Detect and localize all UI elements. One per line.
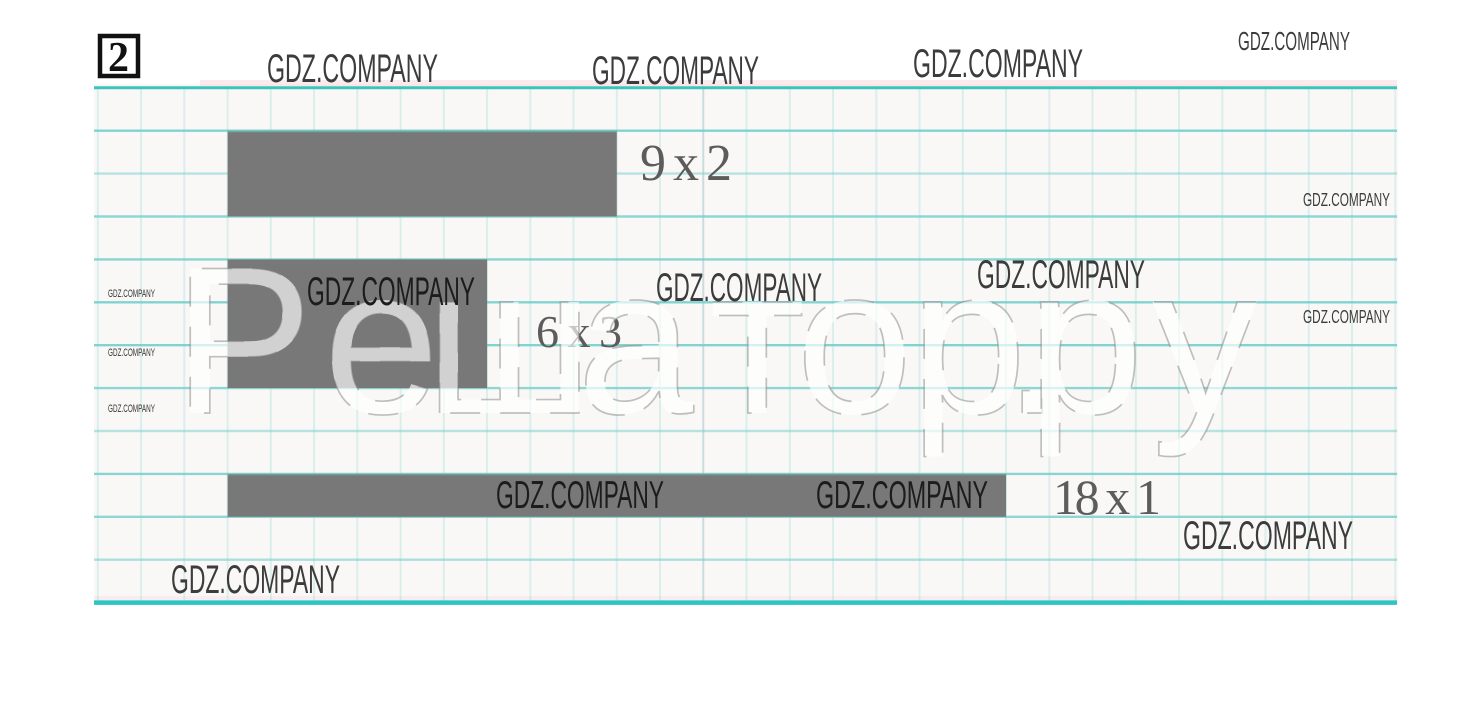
svg-text:GDZ.COMPANY: GDZ.COMPANY [108, 288, 155, 300]
svg-text:GDZ.COMPANY: GDZ.COMPANY [267, 47, 438, 91]
svg-text:GDZ.COMPANY: GDZ.COMPANY [108, 403, 155, 415]
svg-text:GDZ.COMPANY: GDZ.COMPANY [1303, 190, 1390, 210]
svg-text:GDZ.COMPANY: GDZ.COMPANY [1238, 26, 1350, 56]
svg-text:GDZ.COMPANY: GDZ.COMPANY [913, 42, 1083, 86]
svg-text:GDZ.COMPANY: GDZ.COMPANY [1183, 514, 1353, 558]
svg-text:GDZ.COMPANY: GDZ.COMPANY [816, 474, 988, 517]
svg-text:GDZ.COMPANY: GDZ.COMPANY [656, 266, 822, 310]
svg-text:GDZ.COMPANY: GDZ.COMPANY [1303, 307, 1390, 327]
svg-text:2: 2 [108, 35, 129, 81]
svg-text:GDZ.COMPANY: GDZ.COMPANY [108, 347, 155, 359]
svg-text:GDZ.COMPANY: GDZ.COMPANY [592, 49, 759, 93]
svg-text:GDZ.COMPANY: GDZ.COMPANY [171, 558, 340, 602]
svg-text:GDZ.COMPANY: GDZ.COMPANY [977, 253, 1145, 297]
svg-text:9 x 2: 9 x 2 [640, 135, 732, 192]
svg-text:18 x 1: 18 x 1 [1053, 469, 1161, 525]
svg-text:GDZ.COMPANY: GDZ.COMPANY [307, 270, 475, 314]
svg-text:GDZ.COMPANY: GDZ.COMPANY [496, 474, 664, 517]
